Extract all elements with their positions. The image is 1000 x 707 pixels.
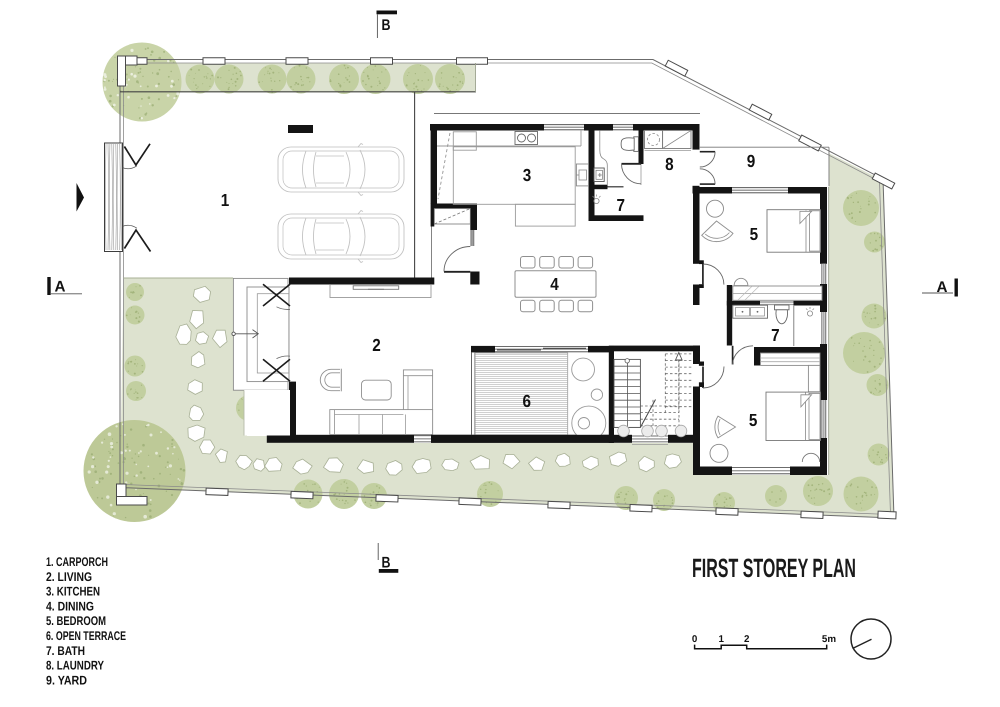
svg-text:0: 0 [692, 634, 698, 645]
svg-text:FIRST STOREY PLAN: FIRST STOREY PLAN [692, 553, 856, 583]
svg-text:5. BEDROOM: 5. BEDROOM [46, 614, 106, 628]
svg-text:7. BATH: 7. BATH [46, 644, 85, 658]
svg-text:4. DINING: 4. DINING [46, 599, 94, 613]
svg-text:8: 8 [665, 154, 674, 174]
svg-text:2. LIVING: 2. LIVING [46, 570, 92, 584]
svg-text:5: 5 [749, 410, 758, 430]
svg-text:1. CARPORCH: 1. CARPORCH [46, 555, 108, 569]
svg-text:3. KITCHEN: 3. KITCHEN [46, 585, 100, 599]
svg-text:B: B [382, 555, 391, 572]
svg-text:1: 1 [718, 634, 724, 645]
svg-text:6. OPEN TERRACE: 6. OPEN TERRACE [46, 629, 126, 643]
svg-text:7: 7 [616, 195, 625, 215]
svg-text:8. LAUNDRY: 8. LAUNDRY [46, 659, 104, 673]
svg-text:2: 2 [372, 335, 381, 355]
svg-text:2: 2 [744, 634, 750, 645]
svg-text:6: 6 [523, 391, 532, 411]
svg-text:A: A [55, 279, 66, 296]
svg-text:7: 7 [771, 325, 780, 345]
svg-text:B: B [382, 17, 391, 34]
svg-text:9. YARD: 9. YARD [46, 673, 87, 687]
svg-text:1: 1 [221, 190, 230, 210]
svg-text:3: 3 [523, 165, 532, 185]
svg-text:A: A [937, 279, 948, 296]
svg-text:9: 9 [747, 151, 756, 171]
svg-text:4: 4 [550, 274, 559, 294]
svg-text:5: 5 [750, 224, 759, 244]
svg-text:5m: 5m [822, 634, 836, 645]
